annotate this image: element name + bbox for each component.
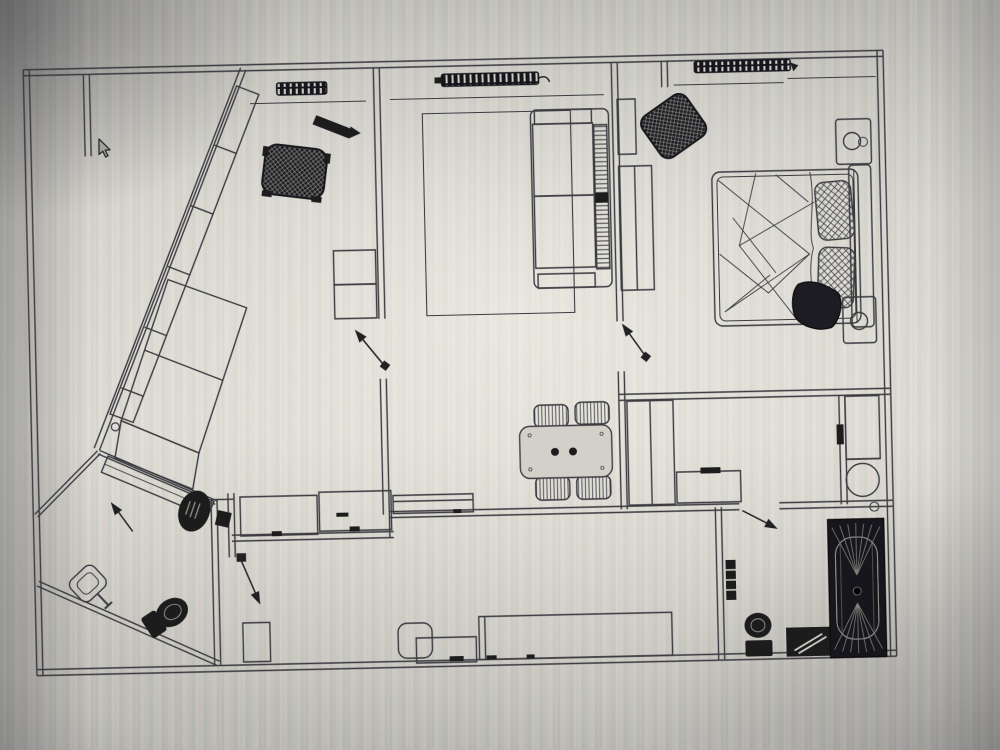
dining-set (519, 402, 613, 501)
round-washbasin-icon (846, 463, 880, 497)
dining-chair (575, 402, 609, 425)
closet (627, 400, 675, 505)
wall-rack-icon (312, 114, 361, 139)
wall-bedroom-south (619, 388, 891, 400)
door-arrows (108, 322, 777, 606)
wall-living-south (389, 500, 893, 517)
radiator-icon (694, 59, 798, 73)
door-arrow (356, 331, 389, 371)
room-wc (66, 560, 194, 642)
hallway (101, 453, 232, 538)
walls (23, 50, 897, 675)
door-arrow (237, 554, 259, 603)
mouse-cursor (99, 139, 110, 157)
wall-room1-south (231, 515, 393, 542)
radiator-icon (277, 82, 327, 95)
rug (422, 110, 575, 315)
wall-stub-left (83, 74, 91, 156)
counter (845, 396, 880, 460)
floor-plan-canvas (0, 0, 1000, 750)
nightstand-top (836, 119, 872, 165)
room-bathroom (725, 518, 887, 660)
washing-machine-icon (786, 627, 831, 657)
screen-photo (0, 0, 1000, 750)
door-arrow (112, 503, 133, 531)
wall-wc-north-a (33, 451, 101, 517)
toilet-icon (744, 612, 772, 656)
corridor-right (627, 399, 741, 506)
pouf (398, 623, 433, 659)
corner-cabinet (243, 622, 271, 662)
dining-chair (577, 476, 612, 500)
bathtub-icon (828, 518, 887, 657)
door-handle (836, 424, 843, 444)
diagonal-counter (103, 85, 267, 422)
room-shower (836, 396, 882, 512)
wall-stub-top (661, 61, 668, 87)
door-arrow (742, 510, 775, 529)
dining-chair (536, 477, 571, 501)
cabinet (676, 467, 741, 503)
room-living (383, 71, 617, 514)
dining-table (519, 425, 612, 479)
toilet-icon (139, 592, 193, 640)
room-bedroom-top-left (103, 81, 392, 540)
cabinet-handle (700, 467, 720, 473)
low-cabinets (240, 491, 392, 537)
window-sills (250, 76, 876, 103)
wicker-armchair-icon (258, 143, 332, 204)
wall-left (23, 70, 43, 676)
double-bed (712, 165, 875, 332)
dining-chair (534, 405, 568, 428)
wall-bathroom-west (715, 507, 724, 660)
shoe-cabinet (416, 637, 477, 663)
pedestal-washbasin-icon (67, 562, 120, 616)
wall-living-right (611, 62, 627, 509)
sideboard (479, 612, 673, 659)
door-knob (111, 423, 119, 431)
towel-radiator-icon (725, 560, 736, 600)
wicker-armchair-icon (637, 90, 710, 162)
wall-diagonal-outer (37, 577, 220, 670)
desk-chair-icon (173, 486, 216, 536)
radiator-icon (434, 72, 549, 87)
entry-hall (240, 504, 672, 667)
room-bedroom-right (616, 58, 876, 349)
pillow (814, 180, 855, 241)
door-arrow (623, 325, 650, 362)
shelf-unit (333, 250, 377, 319)
